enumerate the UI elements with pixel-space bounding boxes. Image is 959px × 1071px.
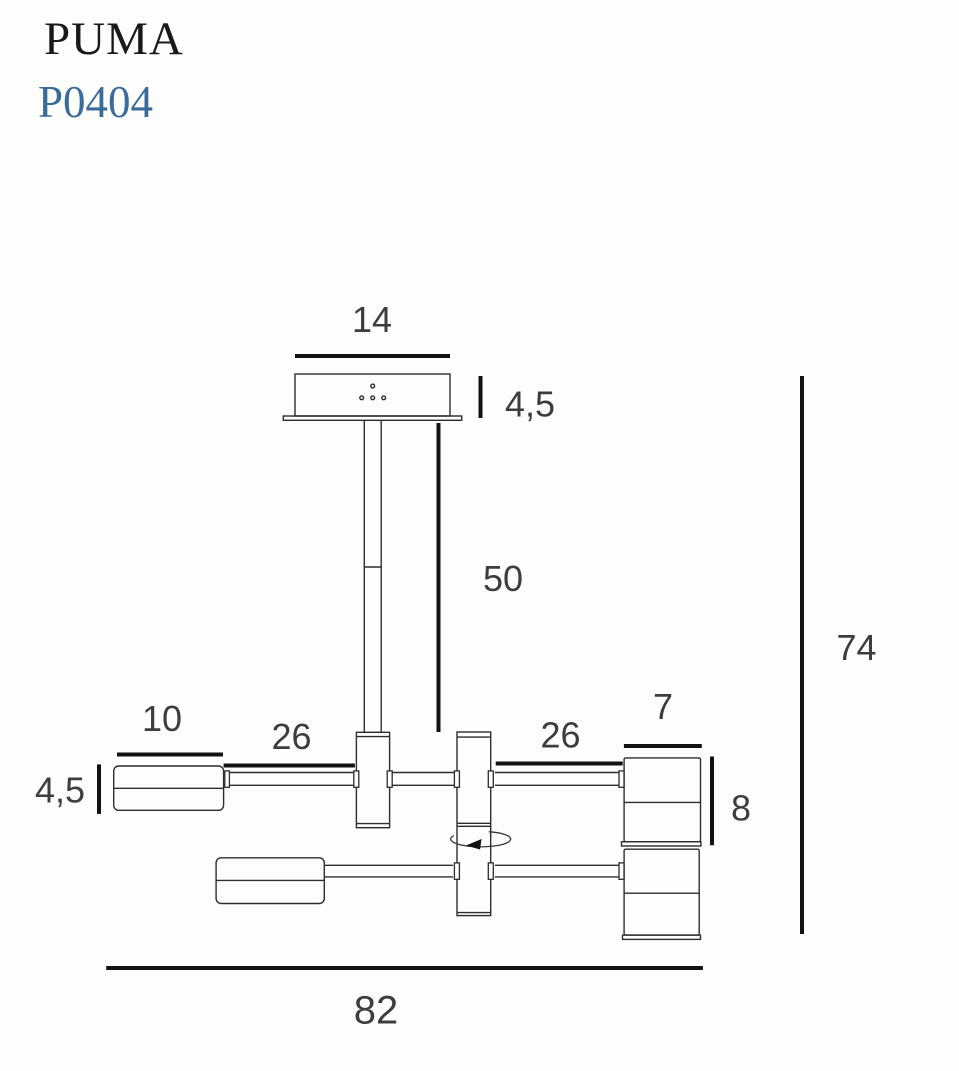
svg-text:26: 26 xyxy=(271,716,311,757)
svg-text:4,5: 4,5 xyxy=(35,770,85,811)
svg-text:50: 50 xyxy=(483,558,523,599)
svg-text:14: 14 xyxy=(352,299,392,340)
svg-text:7: 7 xyxy=(653,686,673,727)
svg-text:4,5: 4,5 xyxy=(505,384,555,425)
svg-text:8: 8 xyxy=(731,788,751,829)
svg-text:26: 26 xyxy=(540,715,580,756)
svg-text:PUMA: PUMA xyxy=(44,13,184,65)
svg-text:10: 10 xyxy=(142,698,182,739)
svg-text:82: 82 xyxy=(354,989,399,1033)
svg-text:74: 74 xyxy=(836,627,876,668)
svg-text:P0404: P0404 xyxy=(38,77,153,127)
